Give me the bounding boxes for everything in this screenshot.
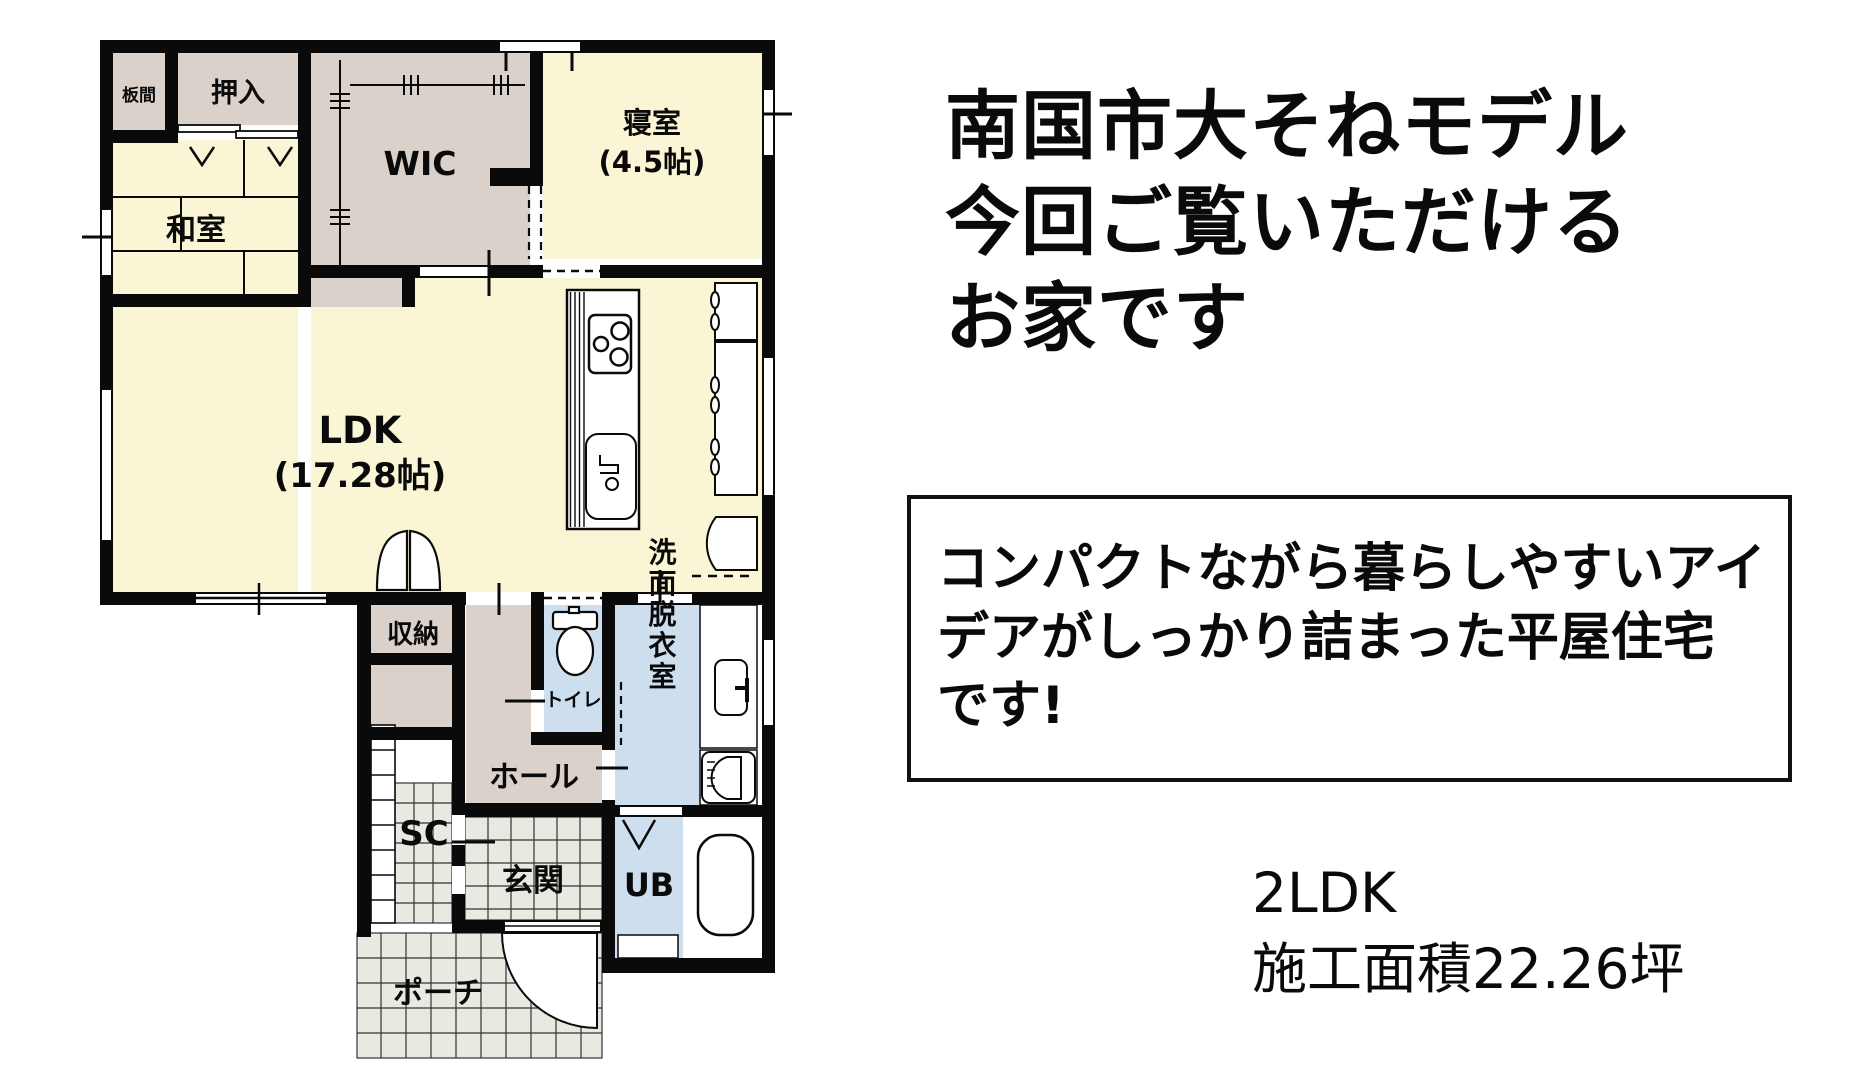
floor-plan: 板間 押入 和室 WIC 寝室 (4.5帖) LDK (17.28帖) 収納 ト… (0, 0, 800, 1089)
specs: 2LDK 施工面積22.26坪 (1252, 856, 1684, 1008)
label-porch: ポーチ (393, 976, 483, 1011)
room-washitsu-ldk (113, 140, 298, 592)
label-hall: ホール (489, 760, 579, 795)
sink-icon (586, 434, 636, 519)
description-line-2: デアがしっかり詰まった平屋住宅 (937, 604, 1768, 673)
label-bedroom: 寝室 (623, 106, 681, 140)
label-washitsu: 和室 (166, 213, 226, 248)
fridge-icon (707, 517, 757, 570)
spec-area: 施工面積22.26坪 (1252, 932, 1684, 1008)
headline-line-1: 南国市大そねモデル (945, 78, 1629, 174)
headline: 南国市大そねモデル 今回ご覧いただける お家です (945, 78, 1629, 366)
room-hall-arm (466, 605, 531, 745)
label-itanoma: 板間 (122, 85, 156, 106)
ub-window (618, 935, 678, 958)
sc-upper (395, 740, 452, 783)
label-genkan: 玄関 (502, 863, 564, 899)
headline-line-2: 今回ご覧いただける (945, 174, 1629, 270)
cupboard-icon (711, 283, 757, 495)
description-line-3: です! (937, 672, 1768, 741)
label-ldk: LDK (319, 409, 403, 452)
spec-layout-type: 2LDK (1252, 856, 1684, 932)
description-line-1: コンパクトながら暮らしやすいアイ (937, 535, 1768, 604)
stove-icon (589, 315, 631, 373)
room-vestibule (311, 278, 402, 307)
kitchen-counter (567, 290, 639, 529)
washbasin-icon (715, 660, 749, 715)
label-sc: SC (399, 814, 448, 854)
label-toilet: トイレ (544, 689, 601, 711)
headline-line-3: お家です (945, 270, 1629, 366)
toilet-icon (553, 607, 597, 675)
label-washroom: 洗面脱衣室 (645, 537, 678, 692)
label-ldk-size: (17.28帖) (274, 456, 447, 496)
label-oshiire: 押入 (211, 78, 265, 109)
washing-machine-icon (702, 752, 755, 803)
description-box: コンパクトながら暮らしやすいアイ デアがしっかり詰まった平屋住宅 です! (907, 495, 1792, 782)
shoe-shelf-icon (371, 725, 395, 923)
bathtub-icon (698, 835, 753, 935)
label-bedroom-size: (4.5帖) (599, 145, 706, 179)
wic-bedroom-door (529, 186, 541, 259)
sliding-door-icon (178, 125, 298, 138)
label-wic: WIC (384, 144, 457, 183)
label-ub: UB (624, 866, 674, 904)
label-storage: 収納 (387, 619, 439, 650)
